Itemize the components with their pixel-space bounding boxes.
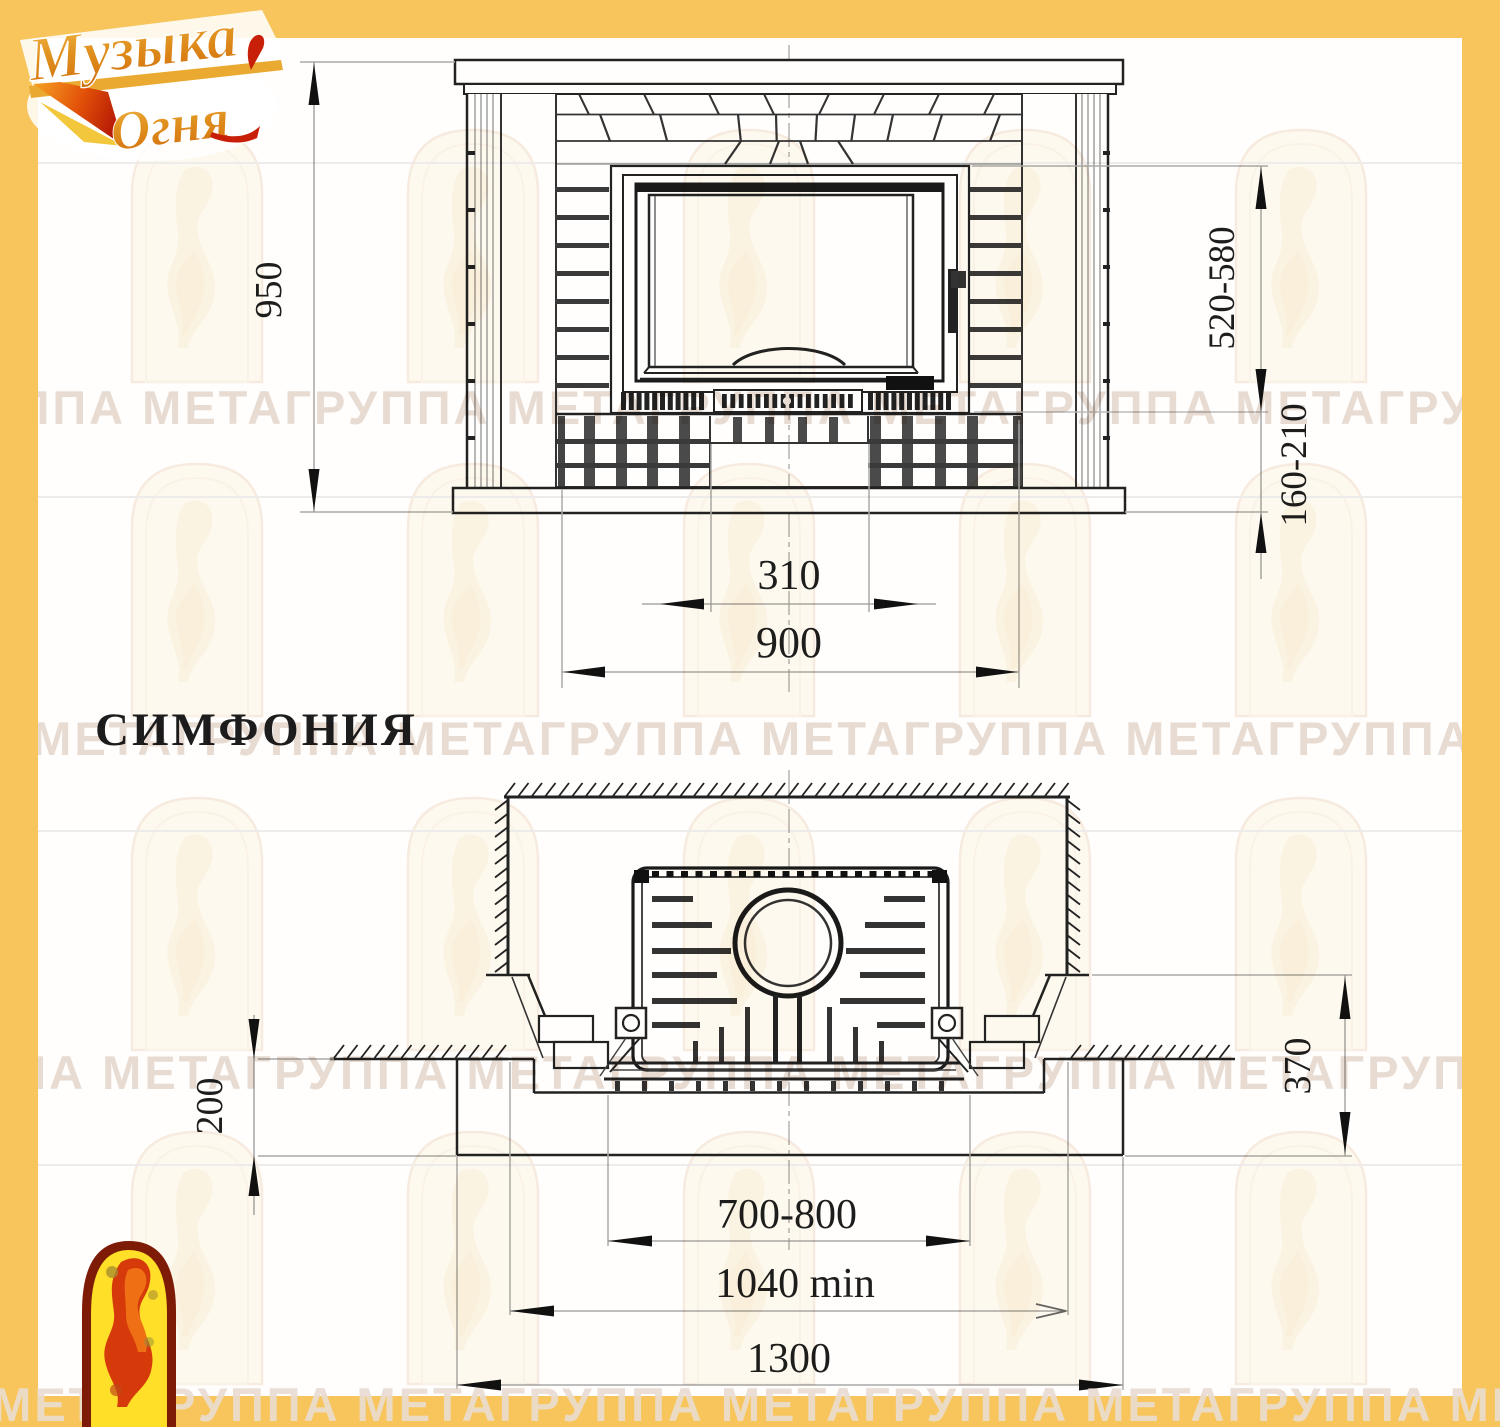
svg-text:ГРУППА МЕТАГРУППА МЕТАГРУППА М: ГРУППА МЕТАГРУППА МЕТАГРУППА МЕТАГРУППА … [0,712,1500,765]
svg-text:ГРУППА МЕТАГРУППА МЕТАГРУППА М: ГРУППА МЕТАГРУППА МЕТАГРУППА МЕТАГРУППА … [0,1378,1500,1427]
svg-text:ГРУППА МЕТАГРУППА МЕТАГРУППА М: ГРУППА МЕТАГРУППА МЕТАГРУППА МЕТАГРУППА … [0,1046,1500,1099]
svg-text:ГРУППА МЕТАГРУППА МЕТАГРУППА М: ГРУППА МЕТАГРУППА МЕТАГРУППА МЕТАГРУППА … [0,381,1500,434]
